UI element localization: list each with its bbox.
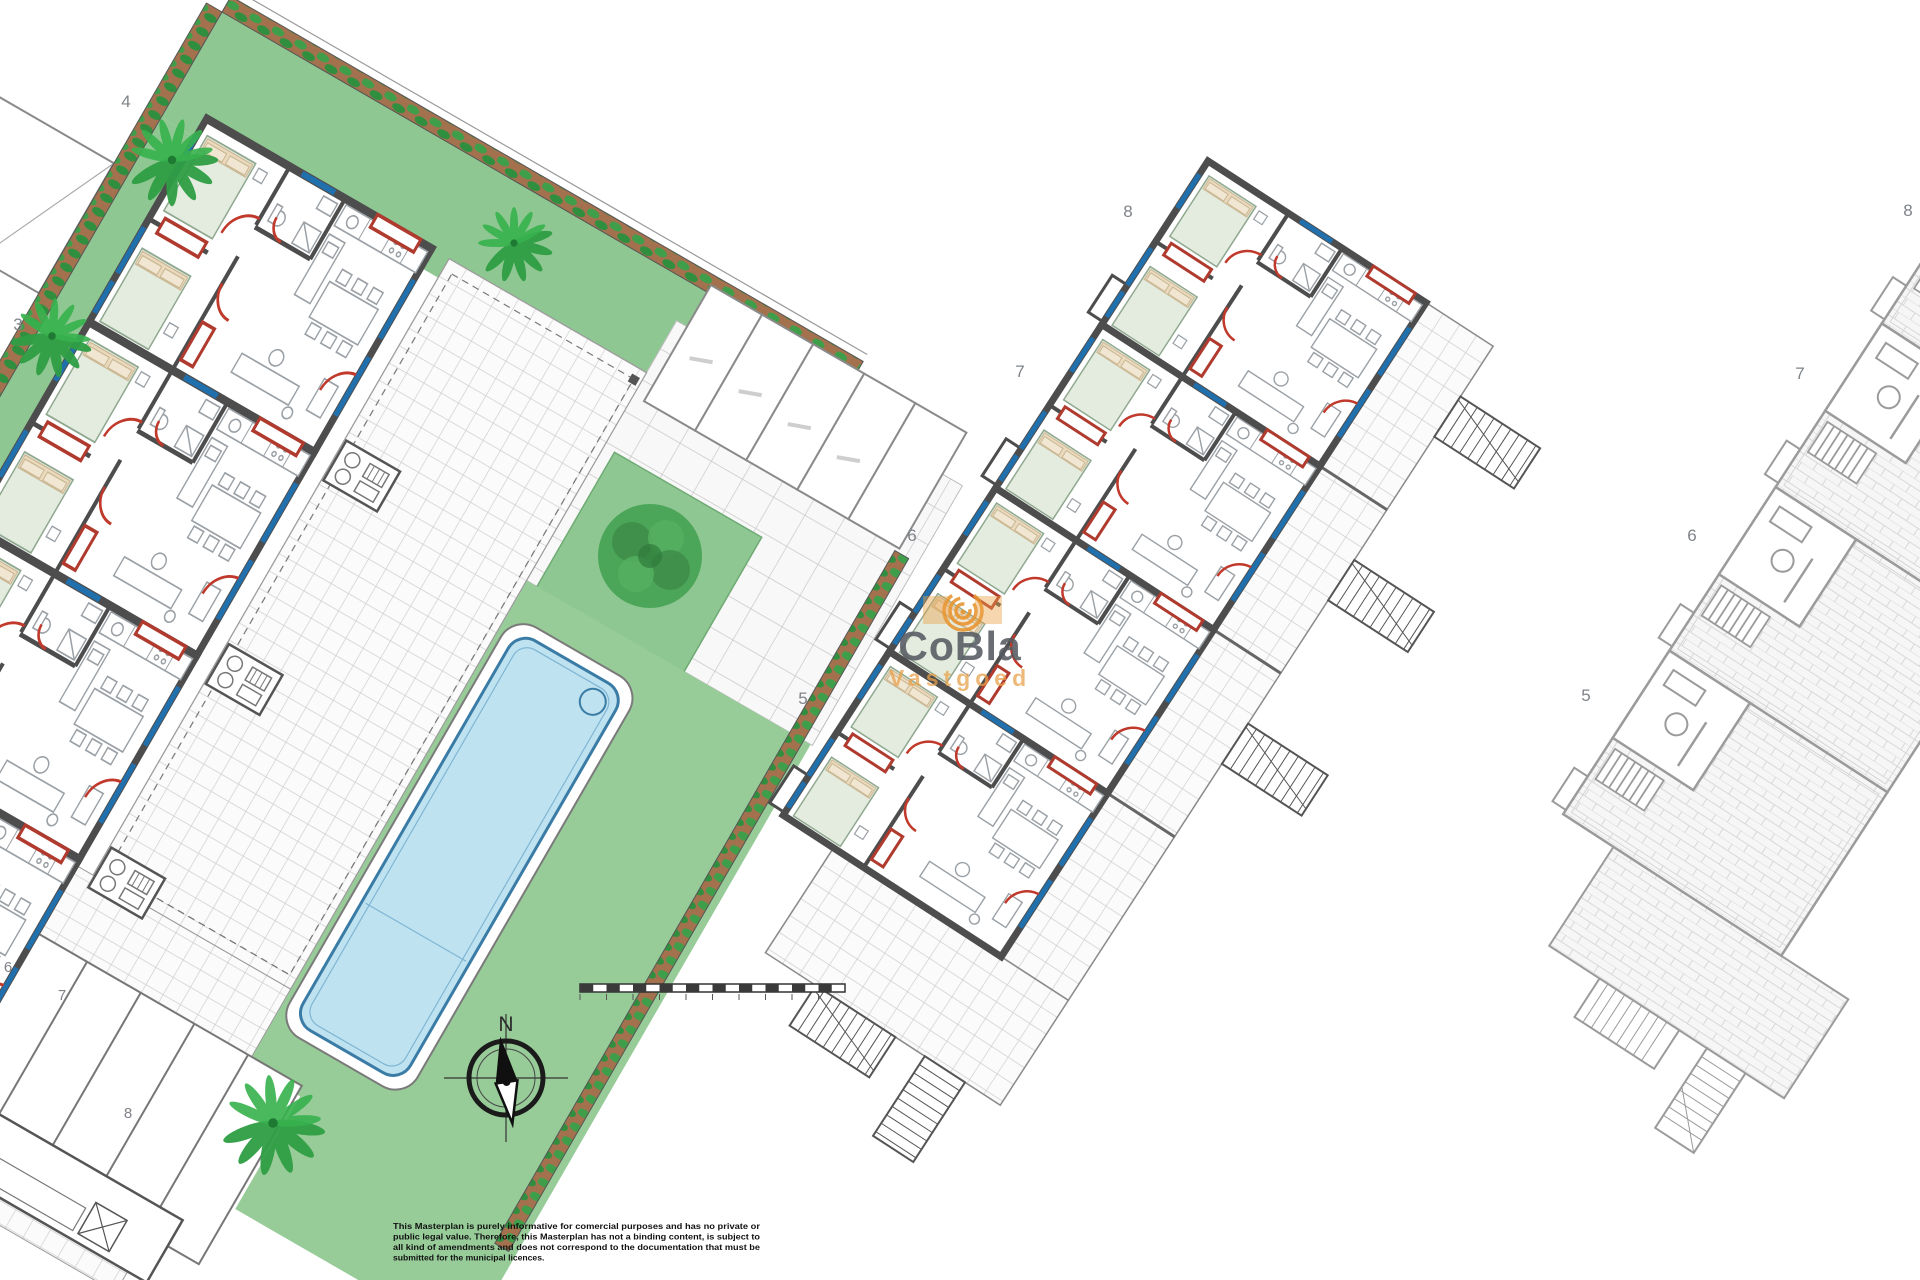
scale-bar-segment (766, 984, 779, 992)
middle-building-unit-number: 6 (907, 526, 916, 545)
parking-bay-number: 7 (58, 987, 66, 1004)
scale-bar-segment (580, 984, 593, 992)
scale-bar-segment (607, 984, 620, 992)
scale-bar-segment (739, 984, 752, 992)
disclaimer-line: submitted for the municipal licences. (393, 1253, 544, 1263)
masterplan-drawing: 4367887658765 N This Masterplan is purel… (0, 0, 1920, 1280)
scale-bar-segment (633, 984, 646, 992)
scale-bar-segment (686, 984, 699, 992)
left-site-unit-number: 4 (121, 92, 130, 111)
watermark-subtitle: Vastgoed (889, 665, 1031, 691)
compass-north-label: N (498, 1013, 513, 1036)
right-building-unit-number: 8 (1903, 201, 1912, 220)
middle-building-unit-number: 7 (1015, 362, 1024, 381)
disclaimer-line: This Masterplan is purely informative fo… (393, 1221, 761, 1231)
middle-building-unit-number: 5 (798, 689, 807, 708)
parking-bay-number: 8 (124, 1105, 132, 1122)
scale-bar-segment (660, 984, 673, 992)
round-tree (598, 504, 702, 608)
right-building-unit-number: 5 (1581, 686, 1590, 705)
disclaimer-line: all kind of amendments and does not corr… (393, 1242, 760, 1252)
right-building-unit-number: 7 (1795, 364, 1804, 383)
middle-building-unit-number: 8 (1123, 202, 1132, 221)
scale-bar-segment (713, 984, 726, 992)
disclaimer-line: public legal value. Therefore, this Mast… (393, 1232, 760, 1242)
scale-bar-segment (819, 984, 832, 992)
watermark-title: CoBla (898, 623, 1022, 669)
left-site-unit-number: 3 (13, 315, 22, 334)
parking-bay-number: 6 (4, 959, 12, 976)
right-building-unit-number: 6 (1687, 526, 1696, 545)
site-plan-svg: 4367887658765 N This Masterplan is purel… (0, 0, 1920, 1280)
scale-bar-segment (792, 984, 805, 992)
